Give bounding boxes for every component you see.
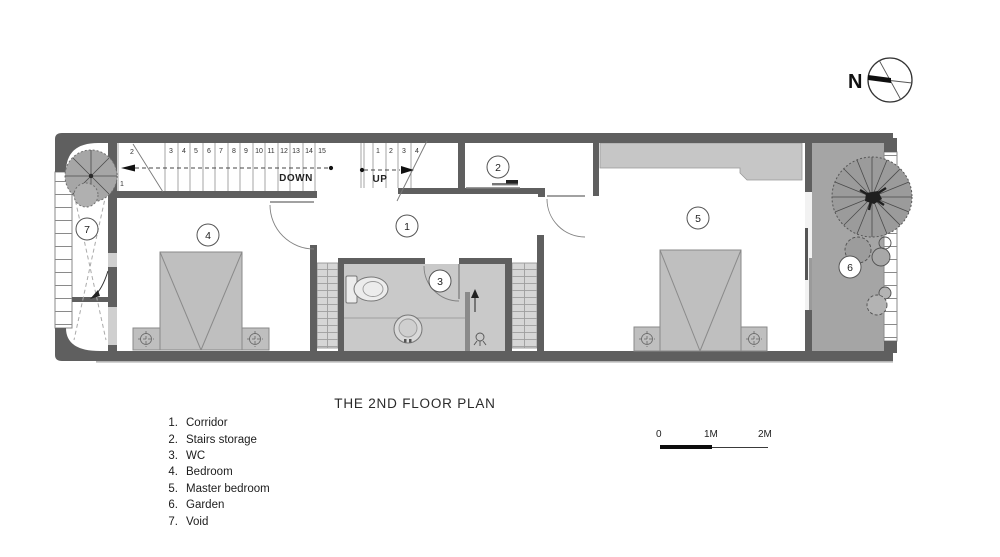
stair-number: 15 xyxy=(318,148,326,155)
wall xyxy=(108,191,317,198)
bed-icon xyxy=(160,252,242,350)
compass-n-label: N xyxy=(848,71,862,93)
legend-label: WC xyxy=(186,450,205,462)
stair-number: 13 xyxy=(292,148,300,155)
room-label-void: 7 xyxy=(76,218,98,240)
stairs-storage-shelf xyxy=(466,180,520,188)
left-louver-cells xyxy=(55,172,72,328)
legend-label: Stairs storage xyxy=(186,434,257,446)
wall xyxy=(505,258,512,351)
stair-number: 4 xyxy=(182,148,186,155)
stair-number: 8 xyxy=(232,148,236,155)
legend-number: 5. xyxy=(160,483,178,495)
stair-number: 1 xyxy=(376,148,380,155)
wall xyxy=(96,351,893,361)
svg-text:2: 2 xyxy=(495,162,501,174)
wall-shadow-line xyxy=(96,361,893,363)
wall xyxy=(459,258,512,264)
sliding-door-leaf xyxy=(805,228,808,280)
legend-item: 3. WC xyxy=(160,448,270,464)
wardrobe-counter xyxy=(600,143,802,180)
sliding-door-leaf xyxy=(809,258,812,310)
legend-number: 7. xyxy=(160,516,178,528)
legend-number: 6. xyxy=(160,499,178,511)
legend-item: 2. Stairs storage xyxy=(160,431,270,447)
legend-item: 6. Garden xyxy=(160,497,270,513)
stair-number: 3 xyxy=(169,148,173,155)
wall xyxy=(458,188,545,194)
nightstand xyxy=(133,328,160,350)
stair-number: 5 xyxy=(194,148,198,155)
svg-text:5: 5 xyxy=(695,213,701,225)
shower-partition xyxy=(465,292,470,351)
sink-icon xyxy=(394,315,422,343)
wall xyxy=(458,143,465,194)
stair-number: 11 xyxy=(267,148,274,155)
stair-number: 12 xyxy=(280,148,288,155)
stair-number: 4 xyxy=(415,148,419,155)
legend-item: 5. Master bedroom xyxy=(160,481,270,497)
wall xyxy=(398,188,465,194)
walkline-dot xyxy=(329,166,333,170)
nightstand xyxy=(242,328,269,350)
door-arc xyxy=(547,199,585,237)
legend-number: 4. xyxy=(160,466,178,478)
down-stairs: 1 2 3 4 5 6 7 8 9 10 11 12 13 14 15 DOWN xyxy=(118,143,333,192)
stair-number: 2 xyxy=(130,149,134,156)
scale-bar-thin-segment xyxy=(712,447,768,448)
stair-number: 3 xyxy=(402,148,406,155)
scale-label-1m: 1M xyxy=(704,429,718,440)
stair-number: 6 xyxy=(207,148,211,155)
tree-icon xyxy=(832,157,912,237)
wall-corner-bottomleft xyxy=(55,328,100,361)
stair-number: 14 xyxy=(305,148,313,155)
walkline-dot xyxy=(360,168,364,172)
down-label: DOWN xyxy=(279,173,313,184)
legend: 1. Corridor 2. Stairs storage 3. WC 4. B… xyxy=(160,415,270,530)
scale-bar: 0 1M 2M xyxy=(648,429,778,453)
room-label-garden: 6 xyxy=(839,256,861,278)
page-title: THE 2ND FLOOR PLAN xyxy=(300,396,530,411)
room-label-bedroom: 4 xyxy=(197,224,219,246)
wall xyxy=(884,138,897,152)
window-gap xyxy=(108,253,117,267)
legend-label: Master bedroom xyxy=(186,483,270,495)
floor-plan-drawing: N xyxy=(0,0,1000,557)
stair-number: 7 xyxy=(219,148,223,155)
room-label-wc: 3 xyxy=(429,270,451,292)
legend-number: 3. xyxy=(160,450,178,462)
room-label-master-bedroom: 5 xyxy=(687,207,709,229)
wall xyxy=(537,235,544,351)
wall xyxy=(338,258,425,264)
stair-number: 2 xyxy=(389,148,393,155)
stair-number: 10 xyxy=(255,148,263,155)
scale-label-0: 0 xyxy=(656,429,662,440)
door-arc xyxy=(270,205,314,249)
svg-text:1: 1 xyxy=(404,221,410,233)
walkline-arrow-icon xyxy=(401,166,414,174)
wall xyxy=(338,258,344,351)
floor-plan-page: N xyxy=(0,0,1000,557)
wall xyxy=(593,143,599,196)
wall-stub-void xyxy=(72,297,108,302)
legend-label: Garden xyxy=(186,499,224,511)
compass: N xyxy=(848,58,912,102)
wall xyxy=(538,188,545,197)
legend-item: 7. Void xyxy=(160,513,270,529)
legend-number: 1. xyxy=(160,417,178,429)
svg-text:4: 4 xyxy=(205,230,211,242)
wall xyxy=(884,341,897,353)
legend-item: 4. Bedroom xyxy=(160,464,270,480)
scale-label-2m: 2M xyxy=(758,429,772,440)
walkline-arrow-icon xyxy=(121,165,135,172)
legend-label: Bedroom xyxy=(186,466,233,478)
legend-item: 1. Corridor xyxy=(160,415,270,431)
room-label-stairs-storage: 2 xyxy=(487,156,509,178)
svg-text:3: 3 xyxy=(437,276,443,288)
legend-label: Void xyxy=(186,516,208,528)
bed-icon xyxy=(660,250,741,351)
stair-number: 9 xyxy=(244,148,248,155)
window-gap xyxy=(108,307,117,345)
wall xyxy=(310,245,317,351)
room-label-corridor: 1 xyxy=(396,215,418,237)
legend-number: 2. xyxy=(160,434,178,446)
svg-text:6: 6 xyxy=(847,262,853,274)
up-label: UP xyxy=(373,174,388,185)
stair-number: 1 xyxy=(120,181,124,188)
legend-label: Corridor xyxy=(186,417,228,429)
svg-text:7: 7 xyxy=(84,224,90,236)
wall xyxy=(96,133,893,143)
scale-bar-solid-segment xyxy=(660,445,712,449)
